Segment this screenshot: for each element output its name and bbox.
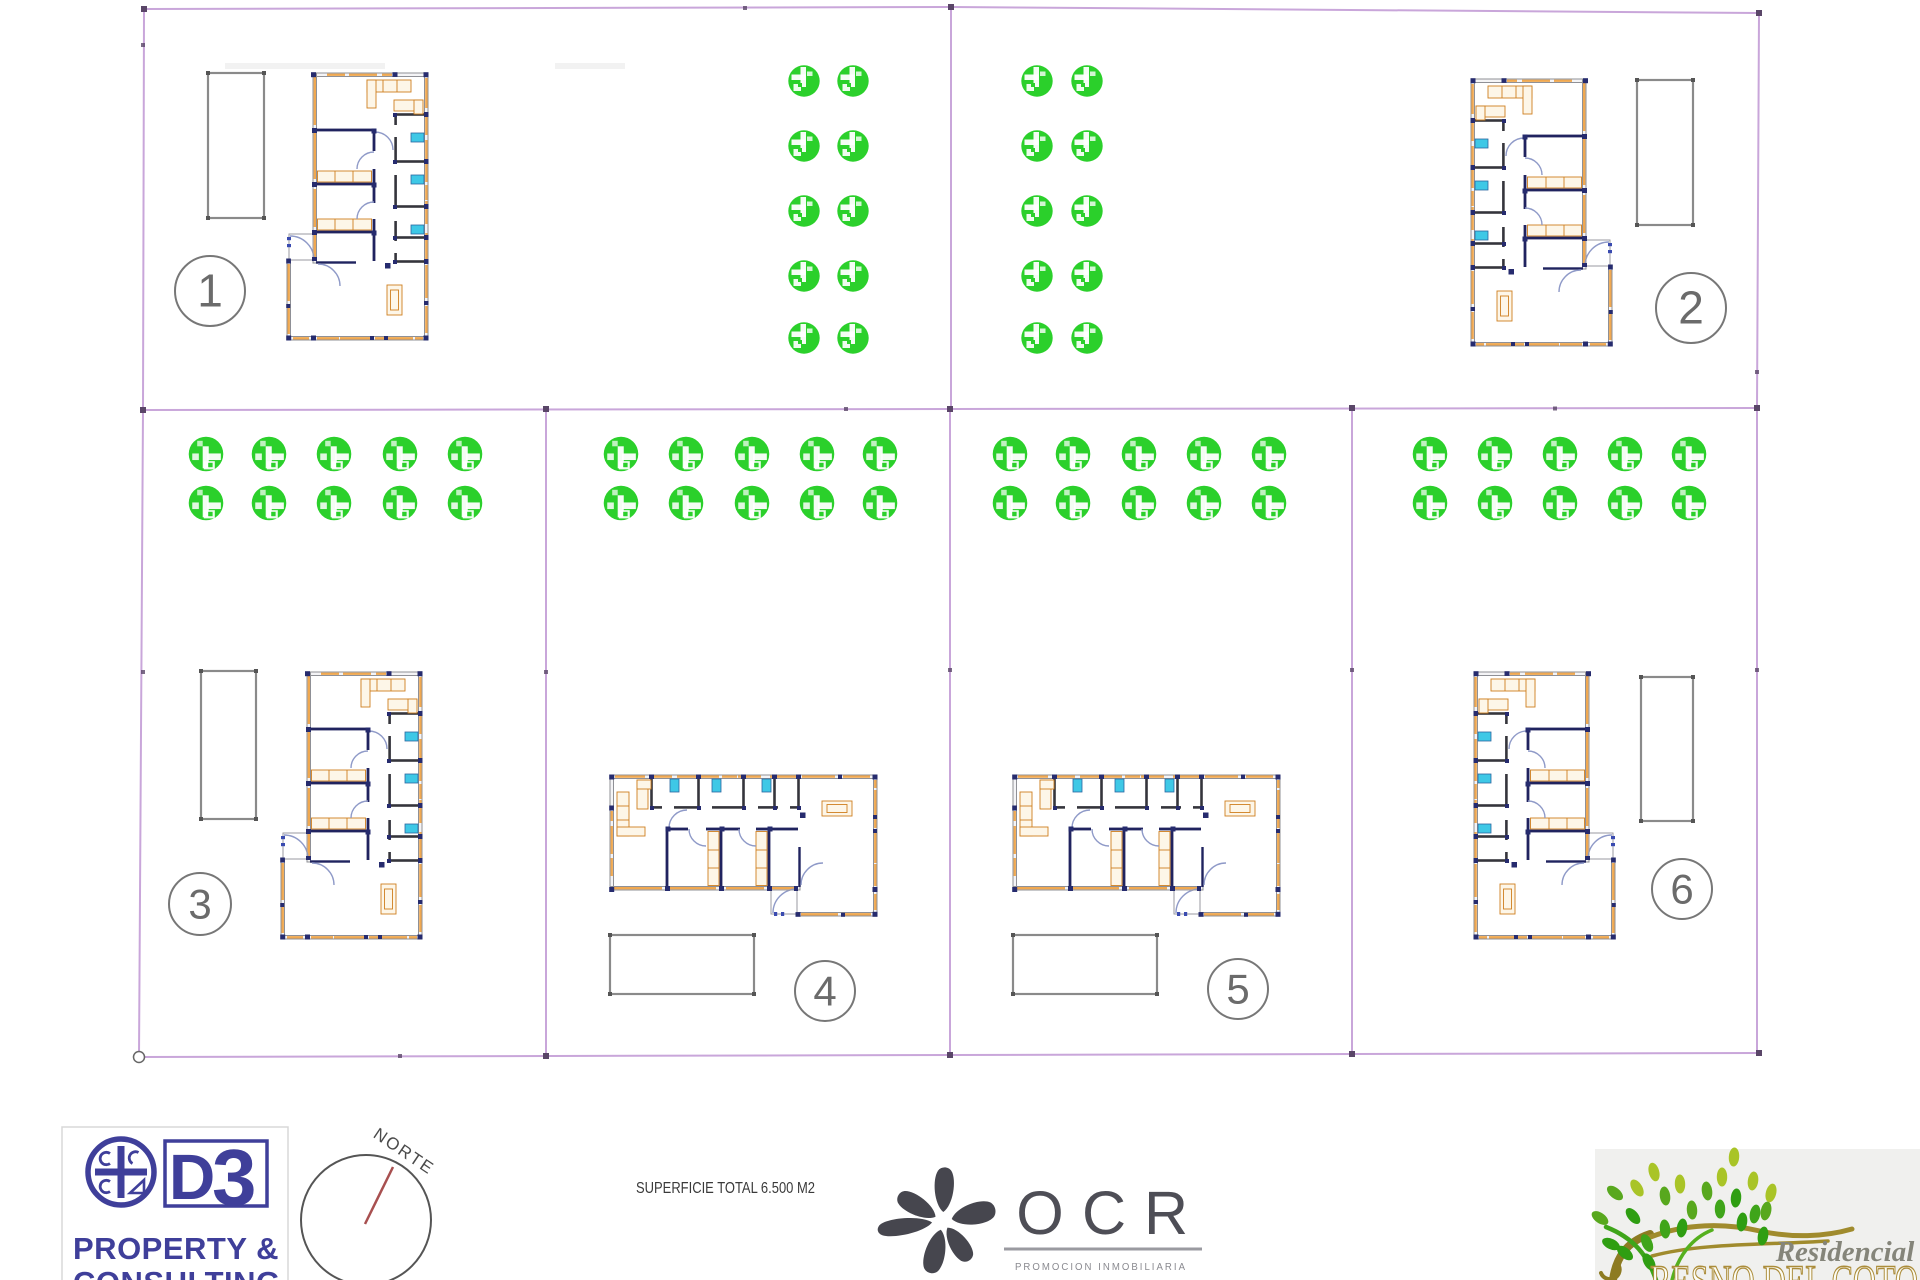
svg-text:O: O <box>1016 1179 1063 1247</box>
svg-text:PROPERTY &: PROPERTY & <box>73 1231 279 1266</box>
svg-text:4: 4 <box>813 967 836 1014</box>
svg-text:D: D <box>169 1141 215 1213</box>
svg-text:CONSULTING: CONSULTING <box>73 1265 281 1280</box>
svg-text:PROMOCION INMOBILIARIA: PROMOCION INMOBILIARIA <box>1015 1261 1187 1273</box>
svg-text:RESNO DEL COTO: RESNO DEL COTO <box>1650 1256 1918 1280</box>
svg-text:2: 2 <box>1678 282 1704 334</box>
svg-text:R: R <box>1144 1179 1188 1247</box>
svg-text:C: C <box>1082 1179 1126 1247</box>
svg-text:1: 1 <box>197 265 223 317</box>
svg-text:3: 3 <box>212 1133 257 1222</box>
svg-text:5: 5 <box>1226 965 1249 1012</box>
svg-text:SUPERFICIE TOTAL 6.500 M2: SUPERFICIE TOTAL 6.500 M2 <box>636 1180 815 1197</box>
svg-text:3: 3 <box>188 880 211 927</box>
svg-text:6: 6 <box>1670 865 1693 912</box>
